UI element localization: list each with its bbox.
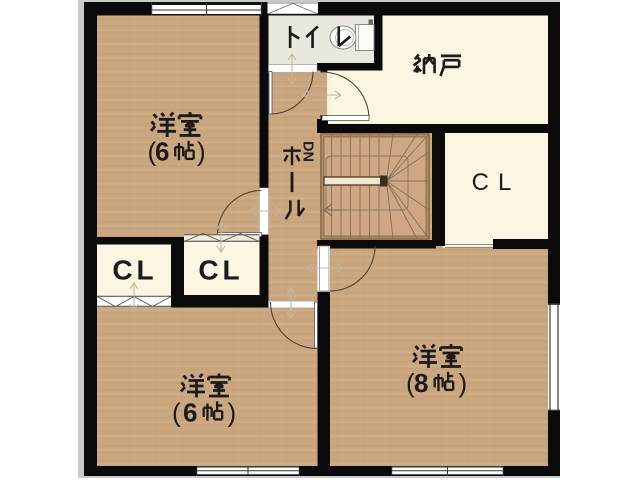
svg-text:DN: DN — [300, 141, 316, 162]
svg-text:CL: CL — [198, 255, 243, 286]
svg-text:): ) — [197, 137, 206, 167]
svg-text:6: 6 — [183, 398, 197, 428]
svg-text:8: 8 — [414, 368, 428, 398]
svg-text:): ) — [459, 368, 468, 398]
svg-text:): ) — [228, 398, 237, 428]
svg-text:CL: CL — [112, 255, 157, 286]
svg-text:CL: CL — [472, 169, 521, 196]
svg-text:6: 6 — [155, 137, 169, 167]
svg-text:(: ( — [172, 398, 181, 428]
